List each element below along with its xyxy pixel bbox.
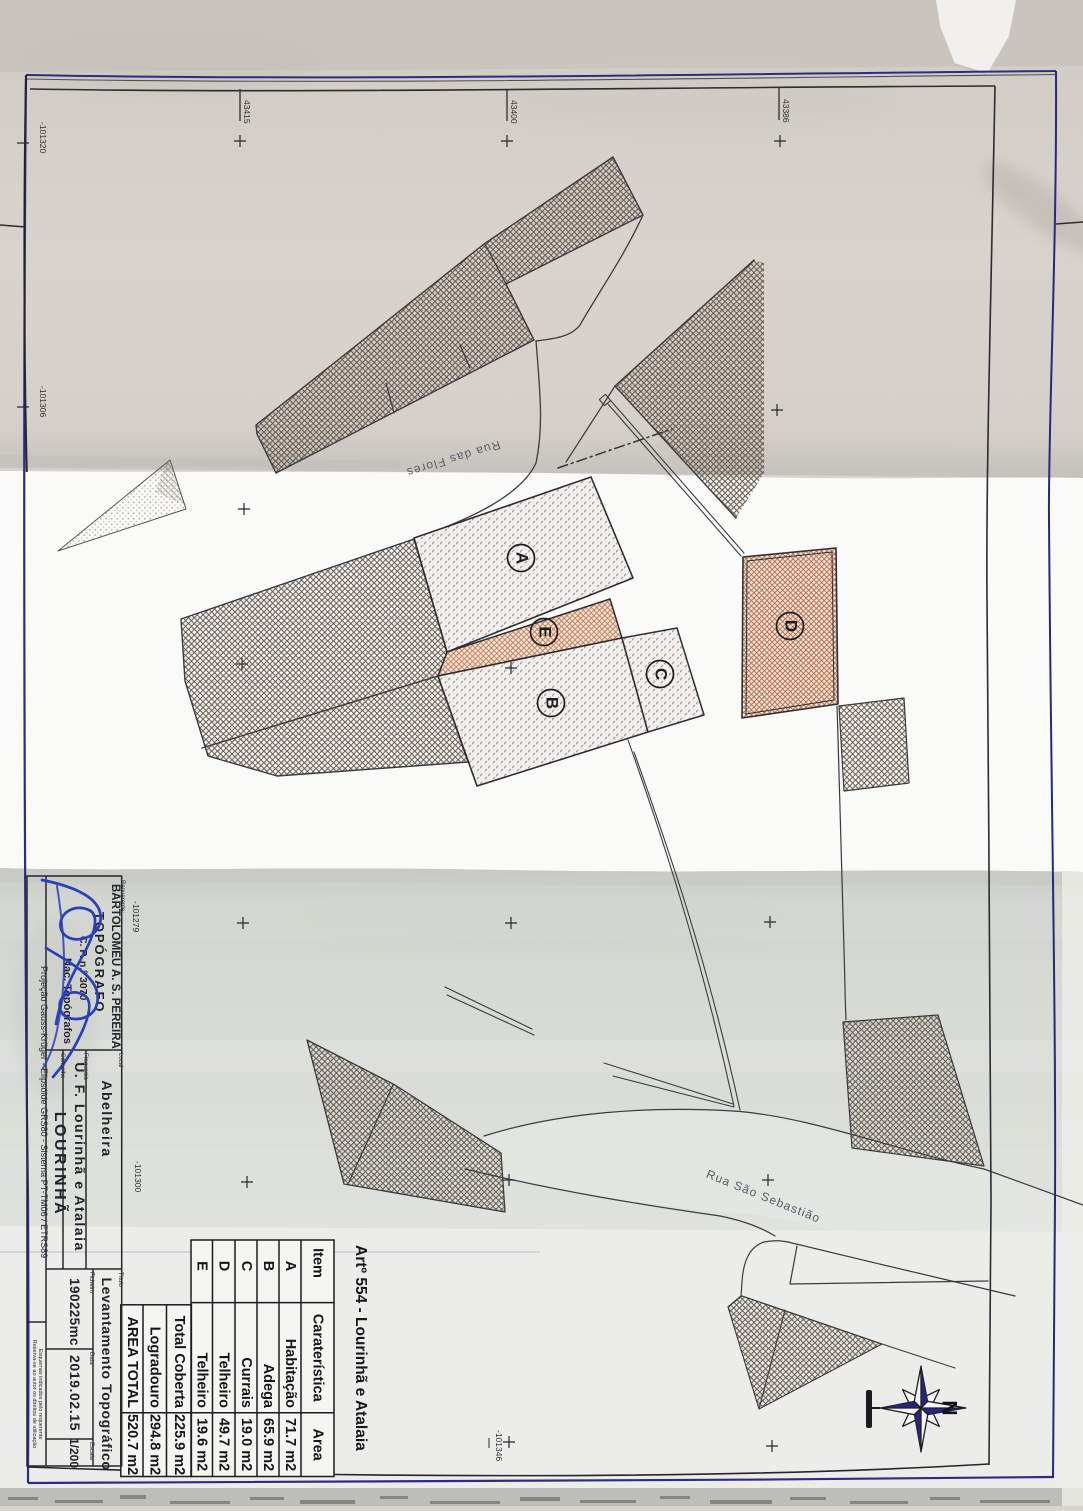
svg-text:Area: Area: [310, 1428, 326, 1461]
svg-text:19.6 m2: 19.6 m2: [194, 1418, 210, 1471]
svg-text:Escala: Escala: [88, 1442, 94, 1461]
svg-text:LOURINHÃ: LOURINHÃ: [51, 1112, 71, 1216]
svg-text:B: B: [260, 1261, 276, 1271]
svg-text:D: D: [782, 620, 801, 632]
svg-text:-101300: -101300: [133, 1161, 143, 1192]
svg-text:294.8 m2: 294.8 m2: [147, 1414, 163, 1475]
svg-text:43415: 43415: [242, 100, 252, 124]
svg-text:Concelho: Concelho: [59, 1053, 65, 1079]
svg-text:71.7 m2: 71.7 m2: [282, 1418, 298, 1471]
svg-text:520.7 m2: 520.7 m2: [124, 1414, 140, 1475]
svg-text:Reserva-se ao autor os direito: Reserva-se ao autor os direitos de utili…: [31, 1340, 37, 1449]
svg-text:C: C: [238, 1261, 254, 1272]
svg-text:43400: 43400: [509, 100, 519, 124]
svg-text:B: B: [543, 697, 562, 709]
svg-text:1/200: 1/200: [67, 1438, 81, 1468]
svg-text:Item: Item: [310, 1248, 326, 1278]
svg-text:Data: Data: [88, 1352, 94, 1365]
svg-text:C: C: [652, 668, 671, 680]
svg-text:190225mc: 190225mc: [67, 1278, 82, 1346]
svg-text:A: A: [513, 552, 532, 564]
svg-text:49.7 m2: 49.7 m2: [216, 1418, 232, 1471]
svg-text:Total Coberta: Total Coberta: [171, 1316, 187, 1409]
svg-text:Telheiro: Telheiro: [194, 1353, 210, 1408]
svg-text:Caraterística: Caraterística: [310, 1314, 326, 1403]
svg-text:E: E: [536, 626, 555, 637]
svg-text:Levantamento Topográfico: Levantamento Topográfico: [99, 1277, 115, 1470]
svg-text:U. F. Lourinhã e Atalaia: U. F. Lourinhã e Atalaia: [72, 1062, 88, 1252]
svg-text:19.0 m2: 19.0 m2: [238, 1418, 254, 1471]
svg-text:43386: 43386: [781, 99, 791, 123]
svg-text:-101320: -101320: [38, 122, 48, 153]
svg-text:Logradouro: Logradouro: [147, 1327, 163, 1408]
svg-text:Título: Título: [117, 1272, 123, 1288]
svg-text:N: N: [938, 1400, 961, 1415]
svg-text:BARTOLOMEU A. S. PEREIRA: BARTOLOMEU A. S. PEREIRA: [109, 884, 121, 1049]
svg-text:225.9 m2: 225.9 m2: [171, 1414, 187, 1475]
svg-text:Projeção Gauss-Krüger - Elipsó: Projeção Gauss-Krüger - Elipsóide GRS80 …: [39, 966, 49, 1258]
svg-text:Local: Local: [117, 1053, 123, 1067]
svg-text:AREA TOTAL: AREA TOTAL: [124, 1316, 140, 1408]
svg-text:Telheiro: Telheiro: [216, 1353, 232, 1408]
svg-text:65.9 m2: 65.9 m2: [260, 1418, 276, 1471]
svg-text:Artº 554 - Lourinhã e Atalaia: Artº 554 - Lourinhã e Atalaia: [352, 1245, 369, 1451]
svg-text:D: D: [216, 1261, 232, 1271]
svg-text:Habitação: Habitação: [282, 1339, 298, 1408]
svg-text:Currais: Currais: [238, 1357, 254, 1408]
svg-text:A: A: [282, 1261, 298, 1272]
svg-text:E: E: [194, 1261, 210, 1271]
svg-text:Ficheiro: Ficheiro: [88, 1272, 94, 1294]
svg-text:-101346: -101346: [494, 1430, 504, 1461]
svg-text:-101279: -101279: [131, 901, 141, 932]
svg-text:-101306: -101306: [38, 386, 48, 417]
svg-text:Abelheira: Abelheira: [99, 1080, 115, 1157]
svg-text:Adega: Adega: [260, 1364, 276, 1409]
svg-text:2019.02.15: 2019.02.15: [67, 1355, 83, 1431]
